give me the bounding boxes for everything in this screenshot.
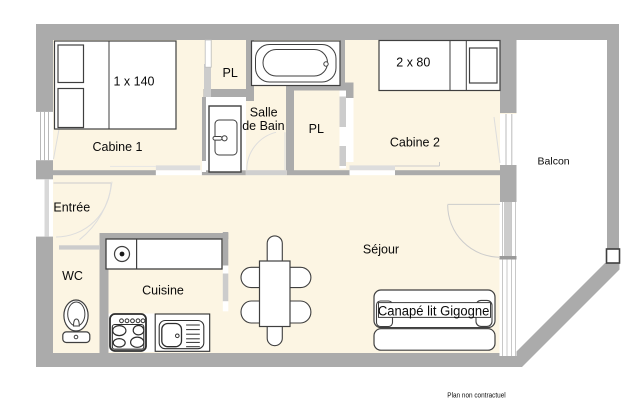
svg-text:de Bain: de Bain bbox=[242, 119, 284, 133]
svg-text:WC: WC bbox=[62, 269, 83, 283]
svg-text:PL: PL bbox=[309, 122, 324, 136]
svg-text:Cabine 1: Cabine 1 bbox=[92, 140, 142, 154]
svg-text:Salle: Salle bbox=[250, 106, 278, 120]
svg-text:Cabine 2: Cabine 2 bbox=[390, 136, 440, 150]
svg-text:Séjour: Séjour bbox=[363, 243, 399, 257]
svg-text:PL: PL bbox=[223, 66, 238, 80]
svg-text:1 x 140: 1 x 140 bbox=[113, 75, 154, 89]
svg-text:Plan non contractuel: Plan non contractuel bbox=[447, 391, 506, 400]
svg-text:Cuisine: Cuisine bbox=[142, 284, 184, 298]
svg-text:Canapé lit Gigogne: Canapé lit Gigogne bbox=[378, 304, 490, 319]
svg-text:Entrée: Entrée bbox=[53, 201, 90, 215]
svg-text:Balcon: Balcon bbox=[538, 156, 570, 168]
svg-text:2 x 80: 2 x 80 bbox=[396, 56, 430, 70]
